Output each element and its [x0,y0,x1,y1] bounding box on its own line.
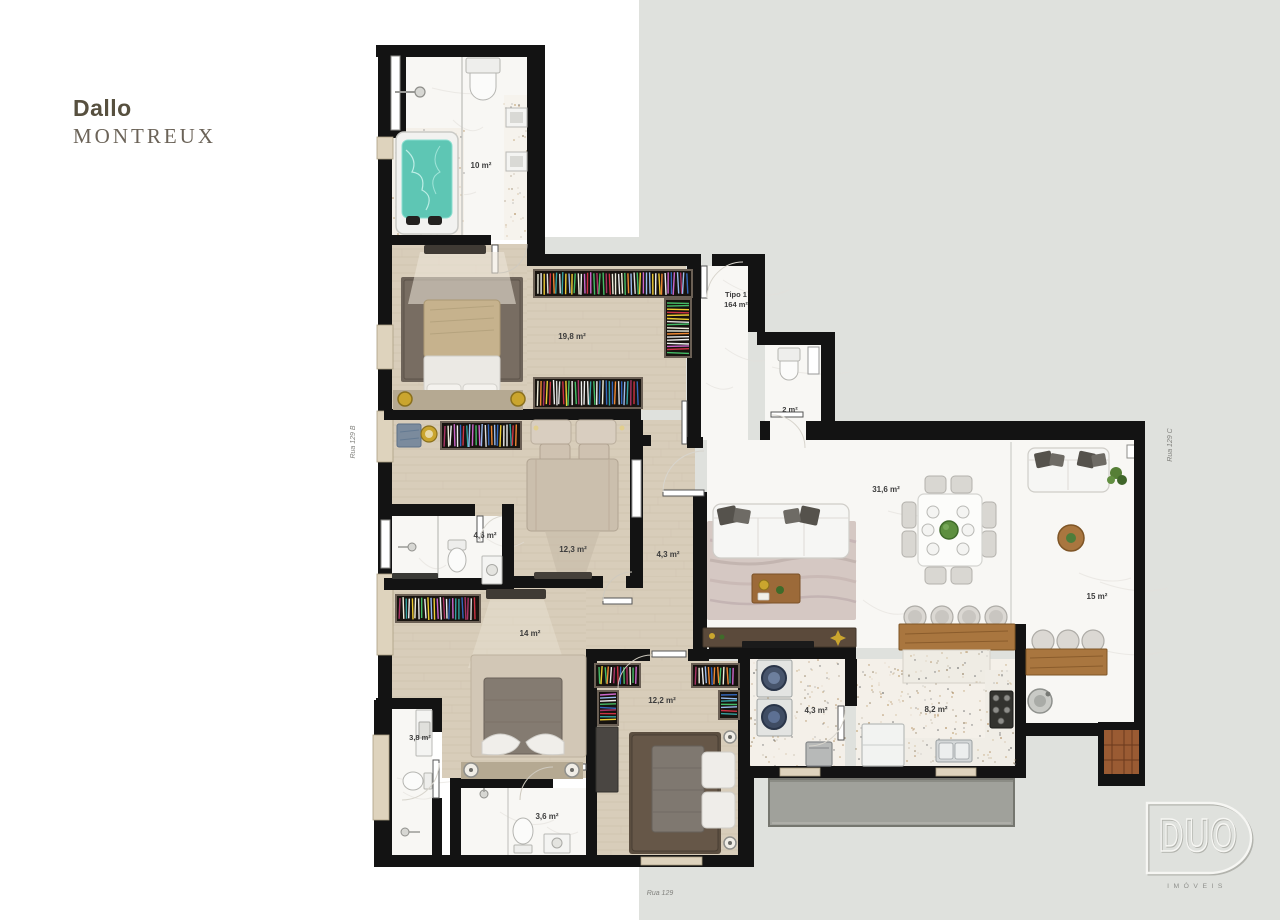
svg-text:Rua 129: Rua 129 [647,890,674,897]
svg-text:12,3 m²: 12,3 m² [559,545,587,554]
svg-text:19,8 m²: 19,8 m² [558,332,586,341]
svg-text:Tipo 1: Tipo 1 [725,290,747,299]
svg-text:8,2 m²: 8,2 m² [924,705,947,714]
svg-text:4,6 m²: 4,6 m² [473,531,496,540]
svg-text:31,6 m²: 31,6 m² [872,485,900,494]
svg-text:4,3 m²: 4,3 m² [804,706,827,715]
svg-text:DUO: DUO [1159,810,1238,861]
svg-text:Rua 129 B: Rua 129 B [350,425,357,458]
svg-text:164 m²: 164 m² [724,300,748,309]
svg-text:12,2 m²: 12,2 m² [648,696,676,705]
svg-text:4,3 m²: 4,3 m² [656,550,679,559]
svg-text:IMÓVEIS: IMÓVEIS [1167,881,1227,890]
svg-text:14 m²: 14 m² [520,629,541,638]
svg-text:Dallo: Dallo [73,95,132,121]
svg-text:Rua 129 C: Rua 129 C [1167,427,1174,461]
svg-text:15 m²: 15 m² [1087,592,1108,601]
svg-text:MONTREUX: MONTREUX [73,124,216,148]
svg-text:3,6 m²: 3,6 m² [535,812,558,821]
svg-text:2 m²: 2 m² [782,405,798,414]
svg-text:10 m²: 10 m² [471,161,492,170]
svg-text:3,8 m²: 3,8 m² [409,733,431,742]
